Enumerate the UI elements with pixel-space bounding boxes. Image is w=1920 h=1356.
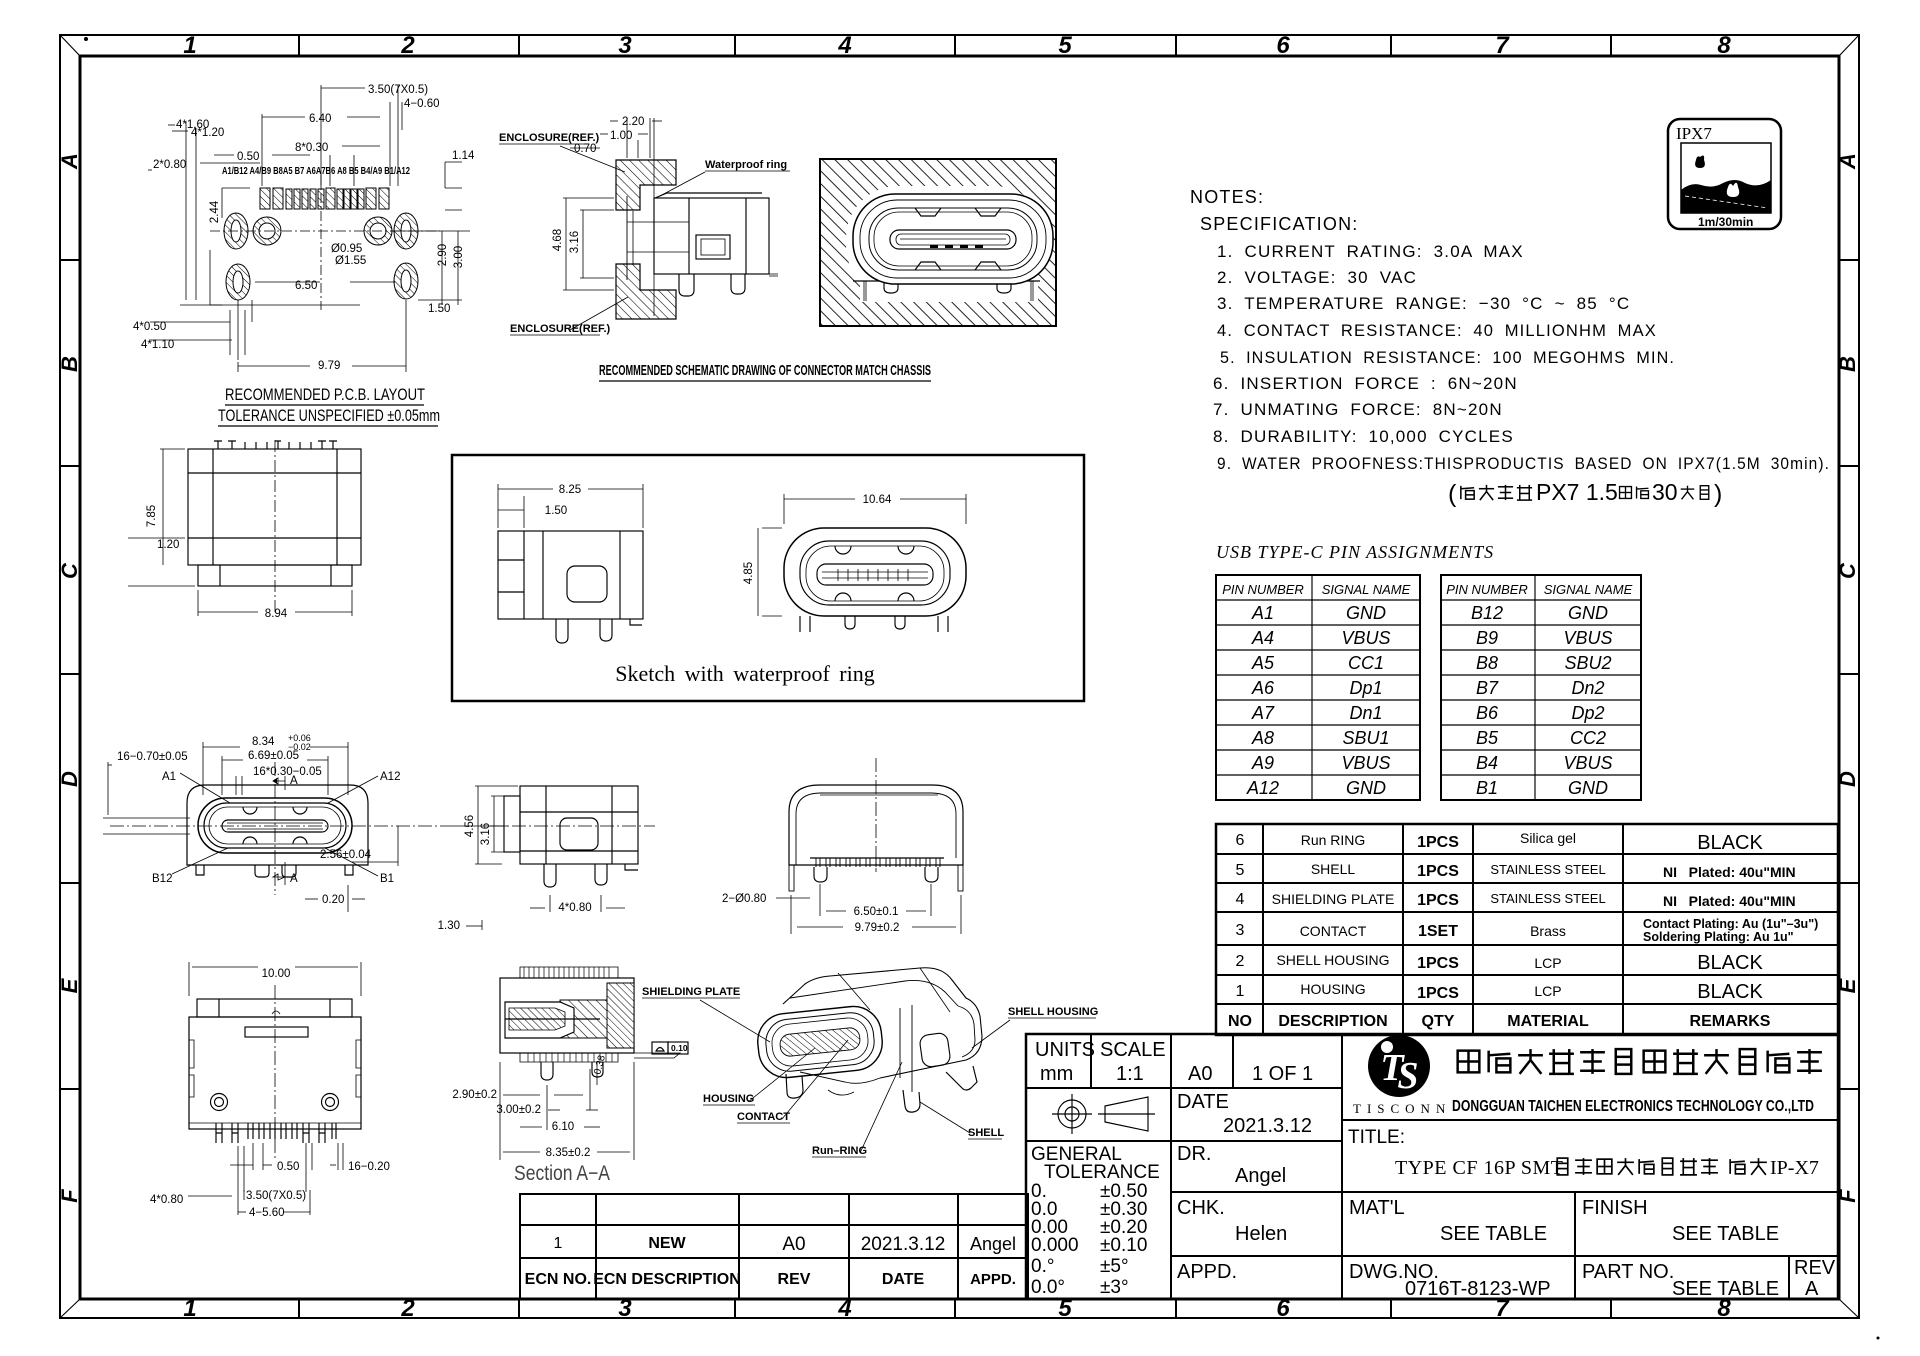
svg-text:B8: B8 (1476, 653, 1498, 673)
svg-text:SEE TABLE: SEE TABLE (1440, 1223, 1547, 1245)
svg-text:10.64: 10.64 (863, 494, 892, 506)
svg-text:4*0.80: 4*0.80 (150, 1194, 183, 1206)
svg-text:1 OF 1: 1 OF 1 (1252, 1063, 1313, 1085)
svg-text:6.50: 6.50 (295, 280, 317, 292)
svg-text:6.40: 6.40 (309, 113, 331, 125)
svg-text:A8: A8 (1251, 728, 1274, 748)
svg-text:APPD.: APPD. (1177, 1261, 1237, 1283)
svg-text:DATE: DATE (882, 1271, 925, 1288)
svg-text:BLACK: BLACK (1697, 832, 1763, 854)
svg-text:6: 6 (1236, 832, 1245, 849)
svg-text:4*1.10: 4*1.10 (141, 339, 174, 351)
svg-text:0.0°: 0.0° (1031, 1277, 1065, 1298)
svg-text:SHIELDING PLATE: SHIELDING PLATE (642, 986, 740, 998)
svg-text:): ) (1714, 480, 1722, 508)
svg-text:3: 3 (618, 32, 632, 59)
svg-text:2.56±0.04: 2.56±0.04 (320, 849, 372, 861)
svg-text:4.85: 4.85 (743, 562, 755, 584)
svg-text:A7: A7 (1251, 703, 1275, 723)
svg-text:B12: B12 (152, 873, 172, 885)
svg-text:4−0.60: 4−0.60 (404, 98, 440, 110)
svg-text:SHELL HOUSING: SHELL HOUSING (1008, 1006, 1098, 1018)
svg-text:TOLERANCE UNSPECIFIED ±0.05mm: TOLERANCE UNSPECIFIED ±0.05mm (218, 406, 440, 425)
svg-text:±0.10: ±0.10 (1100, 1235, 1147, 1256)
svg-text:ENCLOSURE(REF.): ENCLOSURE(REF.) (510, 323, 611, 335)
svg-text:FINISH: FINISH (1582, 1197, 1648, 1219)
svg-text:MAT'L: MAT'L (1349, 1197, 1405, 1219)
svg-text:REMARKS: REMARKS (1690, 1013, 1771, 1030)
svg-text:2021.3.12: 2021.3.12 (861, 1234, 946, 1255)
svg-text:A0: A0 (782, 1234, 805, 1255)
svg-text:30: 30 (1652, 479, 1678, 505)
svg-text:(: ( (1448, 480, 1457, 508)
svg-text:DONGGUAN TAICHEN ELECTRONICS T: DONGGUAN TAICHEN ELECTRONICS TECHNOLOGY … (1452, 1098, 1814, 1115)
svg-text:1.00: 1.00 (610, 130, 632, 142)
svg-text:STAINLESS STEEL: STAINLESS STEEL (1490, 891, 1605, 906)
svg-text:4. CONTACT RESISTANCE: 40 MILL: 4. CONTACT RESISTANCE: 40 MILLIONHM MAX (1217, 321, 1657, 340)
svg-text:SIGNAL NAME: SIGNAL NAME (1322, 582, 1411, 597)
svg-text:B12: B12 (1471, 603, 1503, 623)
svg-text:4: 4 (837, 32, 851, 59)
svg-text:1PCS: 1PCS (1417, 863, 1459, 880)
svg-text:CONTACT: CONTACT (737, 1111, 790, 1123)
svg-text:Helen: Helen (1235, 1223, 1287, 1245)
svg-text:Angel: Angel (1235, 1165, 1286, 1187)
svg-text:BLACK: BLACK (1697, 952, 1763, 974)
svg-text:SCALE: SCALE (1100, 1039, 1166, 1061)
svg-text:Silica gel: Silica gel (1520, 830, 1576, 846)
svg-text:1m/30min: 1m/30min (1698, 215, 1753, 229)
svg-text:2. VOLTAGE: 30 VAC: 2. VOLTAGE: 30 VAC (1217, 268, 1417, 287)
svg-text:A9: A9 (1251, 753, 1274, 773)
svg-text:6.69±0.05: 6.69±0.05 (248, 750, 299, 762)
svg-text:SEE TABLE: SEE TABLE (1672, 1223, 1779, 1245)
svg-text:A12: A12 (1246, 778, 1279, 798)
svg-text:1: 1 (183, 32, 196, 59)
svg-text:3.00: 3.00 (453, 246, 465, 268)
svg-text:7.85: 7.85 (146, 505, 158, 527)
svg-text:1PCS: 1PCS (1417, 985, 1459, 1002)
svg-text:A1: A1 (162, 771, 176, 783)
svg-text:3.16: 3.16 (569, 231, 581, 253)
svg-text:B5: B5 (1476, 728, 1499, 748)
svg-text:1:1: 1:1 (1116, 1063, 1144, 1085)
svg-text:PART NO.: PART NO. (1582, 1261, 1674, 1283)
svg-text:IPX7: IPX7 (1676, 124, 1712, 143)
svg-text:HOUSING: HOUSING (703, 1093, 754, 1105)
svg-text:HOUSING: HOUSING (1300, 981, 1365, 997)
svg-text:0.50: 0.50 (237, 151, 259, 163)
svg-text:5. INSULATION RESISTANCE: 100: 5. INSULATION RESISTANCE: 100 MEGOHMS MI… (1220, 348, 1675, 367)
svg-text:REV: REV (778, 1271, 811, 1288)
svg-text:7. UNMATING FORCE: 8N~20N: 7. UNMATING FORCE: 8N~20N (1213, 400, 1503, 419)
svg-text:1PCS: 1PCS (1417, 955, 1459, 972)
svg-text:VBUS: VBUS (1563, 753, 1612, 773)
svg-text:B1: B1 (380, 873, 394, 885)
svg-text:3.50(7X0.5): 3.50(7X0.5) (368, 84, 428, 96)
svg-text:0.10: 0.10 (671, 1043, 688, 1053)
svg-text:2*0.80: 2*0.80 (153, 159, 186, 171)
svg-text:±3°: ±3° (1100, 1277, 1129, 1298)
svg-text:1: 1 (183, 1295, 196, 1322)
svg-text:PX7 1.5: PX7 1.5 (1536, 479, 1618, 505)
svg-text:0.50: 0.50 (277, 1161, 299, 1173)
svg-text:B9: B9 (1476, 628, 1498, 648)
svg-text:0716T-8123-WP: 0716T-8123-WP (1405, 1278, 1551, 1300)
svg-text:4*0.50: 4*0.50 (133, 321, 166, 333)
svg-text:0.20: 0.20 (322, 894, 344, 906)
svg-text:NI Plated: 40u"MIN: NI Plated: 40u"MIN (1663, 864, 1796, 880)
svg-text:BLACK: BLACK (1697, 981, 1763, 1003)
svg-text:DESCRIPTION: DESCRIPTION (1278, 1013, 1387, 1030)
svg-text:VBUS: VBUS (1563, 628, 1612, 648)
svg-text:9.79: 9.79 (318, 360, 340, 372)
svg-text:A5: A5 (1251, 653, 1275, 673)
svg-text:NEW: NEW (648, 1235, 686, 1252)
svg-text:1PCS: 1PCS (1417, 892, 1459, 909)
svg-text:A1/B12 A4/B9 B8A5 B7 A6A7B6 A8: A1/B12 A4/B9 B8A5 B7 A6A7B6 A8 B5 B4/A9 … (222, 166, 410, 177)
svg-text:SHIELDING PLATE: SHIELDING PLATE (1272, 891, 1395, 907)
svg-text:C: C (57, 562, 82, 579)
svg-text:TISCONN: TISCONN (1353, 1101, 1451, 1116)
svg-text:6. INSERTION FORCE : 6N~20N: 6. INSERTION FORCE : 6N~20N (1213, 374, 1518, 393)
svg-text:4: 4 (1236, 891, 1245, 908)
svg-text:MATERIAL: MATERIAL (1507, 1013, 1589, 1030)
svg-text:4.68: 4.68 (552, 229, 564, 251)
svg-text:A4: A4 (1251, 628, 1274, 648)
svg-text:A: A (1805, 1278, 1819, 1300)
svg-text:4*1.20: 4*1.20 (191, 127, 224, 139)
svg-text:Angel: Angel (970, 1234, 1016, 1254)
svg-text:SIGNAL NAME: SIGNAL NAME (1544, 582, 1633, 597)
svg-text:16*0.30−0.05: 16*0.30−0.05 (253, 766, 322, 778)
svg-text:LCP: LCP (1534, 983, 1561, 999)
svg-text:ECN DESCRIPTION: ECN DESCRIPTION (593, 1271, 741, 1288)
svg-text:2.20: 2.20 (622, 116, 644, 128)
svg-text:GND: GND (1346, 603, 1386, 623)
svg-text:1.14: 1.14 (452, 150, 475, 162)
svg-text:GND: GND (1568, 778, 1608, 798)
svg-text:NI Plated: 40u"MIN: NI Plated: 40u"MIN (1663, 893, 1796, 909)
svg-text:2.90±0.2: 2.90±0.2 (452, 1089, 497, 1101)
svg-text:8*0.30: 8*0.30 (295, 142, 328, 154)
svg-text:CC1: CC1 (1348, 653, 1384, 673)
svg-text:B: B (57, 356, 82, 372)
svg-text:2.90: 2.90 (437, 244, 449, 266)
svg-text:VBUS: VBUS (1341, 628, 1390, 648)
svg-text:1PCS: 1PCS (1417, 834, 1459, 851)
svg-text:A6: A6 (1251, 678, 1275, 698)
svg-text:4*0.80: 4*0.80 (558, 902, 591, 914)
svg-text:GND: GND (1346, 778, 1386, 798)
svg-text:USB TYPE-C PIN ASSIGNMENTS: USB TYPE-C PIN ASSIGNMENTS (1216, 542, 1494, 562)
svg-text:1: 1 (1236, 983, 1245, 1000)
svg-text:5: 5 (1236, 862, 1245, 879)
svg-text:E: E (57, 977, 82, 993)
svg-text:RECOMMENDED SCHEMATIC DRAWING: RECOMMENDED SCHEMATIC DRAWING OF CONNECT… (599, 362, 931, 379)
svg-text:CC2: CC2 (1570, 728, 1606, 748)
svg-text:5: 5 (1058, 32, 1072, 59)
svg-text:SPECIFICATION:: SPECIFICATION: (1200, 214, 1358, 234)
svg-text:2021.3.12: 2021.3.12 (1223, 1115, 1312, 1137)
svg-text:SEE TABLE: SEE TABLE (1672, 1278, 1779, 1300)
svg-text:CHK.: CHK. (1177, 1197, 1225, 1219)
svg-text:TYPE CF 16P SMT: TYPE CF 16P SMT (1395, 1157, 1563, 1179)
svg-text:Run RING: Run RING (1301, 832, 1366, 848)
svg-text:PIN NUMBER: PIN NUMBER (1446, 582, 1528, 597)
svg-text:VBUS: VBUS (1341, 753, 1390, 773)
svg-text:SBU1: SBU1 (1342, 728, 1389, 748)
svg-text:1SET: 1SET (1418, 923, 1458, 940)
svg-text:3: 3 (1236, 922, 1245, 939)
svg-text:Sketch with waterproof ring: Sketch with waterproof ring (615, 661, 874, 686)
svg-text:REV: REV (1794, 1257, 1836, 1279)
svg-text:A12: A12 (380, 771, 400, 783)
svg-text:4−5.60: 4−5.60 (249, 1207, 285, 1219)
svg-text:16−0.70±0.05: 16−0.70±0.05 (117, 751, 188, 763)
svg-text:2: 2 (400, 32, 415, 59)
svg-text:Contact Plating: Au (1u"–3u"): Contact Plating: Au (1u"–3u") (1643, 917, 1818, 931)
svg-text:A: A (57, 153, 82, 170)
svg-text:DATE: DATE (1177, 1091, 1229, 1113)
svg-text:3.00±0.2: 3.00±0.2 (496, 1104, 541, 1116)
svg-text:S: S (1397, 1055, 1418, 1097)
svg-text:SHELL: SHELL (1311, 861, 1356, 877)
svg-text:3.50(7X0.5): 3.50(7X0.5) (246, 1190, 306, 1202)
svg-text:B4: B4 (1476, 753, 1498, 773)
svg-text:A: A (290, 873, 298, 885)
svg-text:8.25: 8.25 (559, 484, 581, 496)
svg-text:6.50±0.1: 6.50±0.1 (854, 906, 899, 918)
svg-text:1.50: 1.50 (428, 303, 450, 315)
svg-text:A1: A1 (1251, 603, 1274, 623)
svg-text:8: 8 (1717, 32, 1731, 59)
svg-text:NOTES:: NOTES: (1190, 187, 1264, 207)
svg-text:QTY: QTY (1422, 1013, 1455, 1030)
svg-text:A0: A0 (1188, 1063, 1212, 1085)
svg-text:Brass: Brass (1530, 923, 1566, 939)
svg-text:6: 6 (1276, 32, 1290, 59)
svg-text:APPD.: APPD. (970, 1271, 1016, 1288)
svg-text:Ø1.55: Ø1.55 (335, 255, 366, 267)
svg-text:9.79±0.2: 9.79±0.2 (855, 922, 900, 934)
svg-text:B7: B7 (1476, 678, 1499, 698)
svg-text:1. CURRENT RATING: 3.0A MAX: 1. CURRENT RATING: 3.0A MAX (1217, 242, 1524, 261)
svg-text:10.00: 10.00 (262, 968, 291, 980)
svg-text:9. WATER PROOFNESS:THISPRODUCT: 9. WATER PROOFNESS:THISPRODUCTIS BASED O… (1217, 454, 1830, 473)
svg-text:STAINLESS STEEL: STAINLESS STEEL (1490, 862, 1605, 877)
svg-text:7: 7 (1495, 32, 1510, 59)
svg-text:Waterproof ring: Waterproof ring (705, 159, 787, 171)
svg-text:8. DURABILITY: 10,000 CYCLES: 8. DURABILITY: 10,000 CYCLES (1213, 427, 1514, 446)
svg-text:Dn2: Dn2 (1571, 678, 1604, 698)
svg-text:8.94: 8.94 (265, 608, 288, 620)
svg-text:TITLE:: TITLE: (1348, 1127, 1405, 1148)
svg-text:GND: GND (1568, 603, 1608, 623)
svg-text:16−0.20: 16−0.20 (348, 1161, 390, 1173)
svg-text:ECN NO.: ECN NO. (525, 1271, 592, 1288)
svg-text:C: C (1835, 562, 1860, 579)
svg-text:A: A (1835, 153, 1860, 170)
svg-text:CONTACT: CONTACT (1300, 923, 1367, 939)
svg-text:1.20: 1.20 (157, 539, 179, 551)
svg-text:RECOMMENDED P.C.B. LAYOUT: RECOMMENDED P.C.B. LAYOUT (225, 385, 425, 404)
svg-text:Soldering Plating: Au 1u": Soldering Plating: Au 1u" (1643, 930, 1794, 944)
svg-text:TOLERANCE: TOLERANCE (1044, 1162, 1160, 1183)
svg-text:0.°: 0.° (1031, 1256, 1054, 1277)
svg-text:1.30: 1.30 (438, 920, 460, 932)
svg-text:Ø0.95: Ø0.95 (331, 243, 362, 255)
svg-text:8.35±0.2: 8.35±0.2 (546, 1147, 591, 1159)
svg-text:NO: NO (1228, 1013, 1252, 1030)
svg-text:LCP: LCP (1534, 955, 1561, 971)
svg-text:1: 1 (554, 1235, 563, 1252)
svg-text:1.50: 1.50 (545, 505, 567, 517)
svg-text:PIN NUMBER: PIN NUMBER (1222, 582, 1304, 597)
svg-text:0.000: 0.000 (1031, 1235, 1079, 1256)
svg-text:SHELL HOUSING: SHELL HOUSING (1276, 952, 1389, 968)
svg-text:6.10: 6.10 (552, 1121, 574, 1133)
svg-text:2−Ø0.80: 2−Ø0.80 (722, 893, 766, 905)
svg-text:B6: B6 (1476, 703, 1499, 723)
svg-text:Dp2: Dp2 (1571, 703, 1604, 723)
svg-text:Run–RING: Run–RING (812, 1145, 867, 1157)
svg-text:A: A (290, 775, 298, 787)
svg-text:IP-X7: IP-X7 (1770, 1157, 1819, 1179)
svg-text:SHELL: SHELL (968, 1127, 1004, 1139)
svg-text:2: 2 (400, 1295, 415, 1322)
svg-text:Section A−A: Section A−A (514, 1162, 610, 1185)
svg-text:DR.: DR. (1177, 1143, 1211, 1165)
svg-text:B: B (1835, 356, 1860, 372)
svg-text:0.70: 0.70 (574, 143, 596, 155)
svg-text:F: F (57, 1189, 82, 1203)
svg-text:Dp1: Dp1 (1349, 678, 1382, 698)
svg-text:3. TEMPERATURE RANGE: −30 °C ~: 3. TEMPERATURE RANGE: −30 °C ~ 85 °C (1217, 294, 1630, 313)
svg-text:mm: mm (1040, 1063, 1073, 1085)
svg-text:±5°: ±5° (1100, 1256, 1129, 1277)
svg-text:2: 2 (1236, 953, 1245, 970)
svg-text:D: D (57, 771, 82, 787)
svg-text:B1: B1 (1476, 778, 1498, 798)
svg-text:3.16: 3.16 (480, 823, 492, 845)
svg-text:4.56: 4.56 (464, 815, 476, 837)
svg-text:2.44: 2.44 (209, 200, 221, 223)
svg-text:8.34: 8.34 (252, 736, 275, 748)
svg-text:SBU2: SBU2 (1564, 653, 1611, 673)
svg-text:D: D (1835, 771, 1860, 787)
svg-text:Dn1: Dn1 (1349, 703, 1382, 723)
svg-text:UNITS: UNITS (1035, 1039, 1095, 1061)
